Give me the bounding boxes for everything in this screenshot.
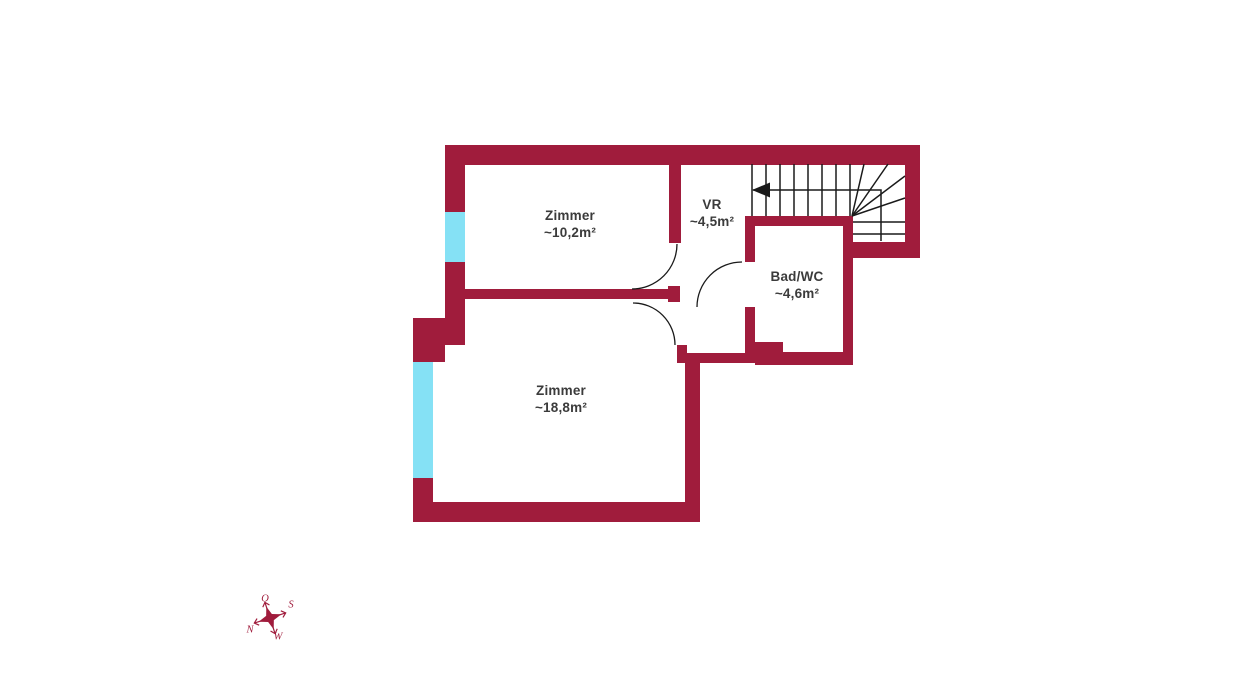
- door-arc-bad-wc: [697, 262, 742, 307]
- room-label-bad-wc: Bad/WC ~4,6m²: [771, 268, 824, 302]
- wall-bad-left-lower: [745, 307, 755, 342]
- window-icon: [413, 362, 433, 478]
- window-icon: [445, 212, 465, 262]
- wall-right: [905, 145, 920, 258]
- wall-door-stub: [677, 345, 687, 353]
- wall-bad-step: [745, 342, 783, 353]
- door-arc-upper-zimmer: [632, 244, 677, 289]
- compass-east-label: O: [261, 594, 269, 605]
- wall-bad-top: [745, 216, 853, 226]
- wall-lower-right: [685, 353, 700, 522]
- room-area: ~18,8m²: [535, 399, 587, 416]
- room-label-vr: VR ~4,5m²: [690, 196, 734, 230]
- room-name: Bad/WC: [771, 268, 824, 285]
- room-name: Zimmer: [535, 382, 587, 399]
- wall-left-upper-b: [445, 262, 465, 345]
- room-label-zimmer-upper: Zimmer ~10,2m²: [544, 207, 596, 241]
- staircase: [752, 164, 905, 241]
- wall-bad-right: [843, 216, 853, 365]
- wall-zimmer-vr: [669, 165, 681, 243]
- wall-bad-left-upper: [745, 226, 755, 262]
- wall-divider: [465, 289, 678, 299]
- walls: [413, 145, 920, 522]
- room-area: ~10,2m²: [544, 224, 596, 241]
- floor-plan-drawing: O S N W: [0, 0, 1236, 700]
- wall-top: [445, 145, 920, 165]
- floor-plan-page: O S N W Zimmer ~10,2m² VR ~4,5m² Bad/WC …: [0, 0, 1236, 700]
- wall-stair-bottom: [853, 242, 920, 258]
- stair-direction-arrow-icon: [752, 183, 770, 198]
- wall-left-upper-a: [445, 145, 465, 212]
- room-area: ~4,6m²: [771, 285, 824, 302]
- room-label-zimmer-lower: Zimmer ~18,8m²: [535, 382, 587, 416]
- room-name: VR: [690, 196, 734, 213]
- room-name: Zimmer: [544, 207, 596, 224]
- wall-left-jog: [413, 318, 445, 362]
- compass-north-label: N: [245, 625, 254, 636]
- compass-rose-icon: O S N W: [245, 594, 294, 643]
- wall-bad-bottom: [755, 352, 853, 365]
- wall-divider-cap: [668, 286, 680, 302]
- wall-corridor-bottom: [677, 353, 755, 363]
- compass-south-label: S: [288, 600, 294, 611]
- door-arc-lower-zimmer: [633, 303, 675, 345]
- room-area: ~4,5m²: [690, 213, 734, 230]
- compass-west-label: W: [274, 632, 284, 643]
- wall-bottom: [413, 502, 700, 522]
